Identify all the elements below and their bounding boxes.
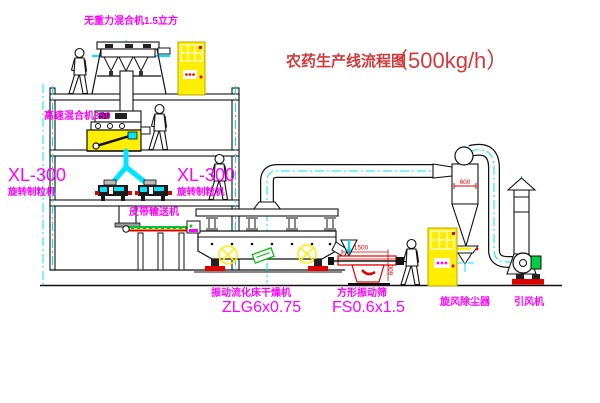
- label-dryer-name: 振动流化床干燥机: [211, 286, 291, 299]
- worker-figure-1: [69, 49, 88, 94]
- screen-length-dim: 1500: [354, 245, 369, 252]
- dryer-exhaust-duct: [253, 164, 452, 212]
- label-gravity-mixer: 无重力混合机1.5立方: [83, 14, 178, 27]
- label-dryer-model: ZLG6x0.75: [222, 299, 301, 316]
- granulator-right: [135, 180, 172, 201]
- worker-figure-2: [149, 105, 168, 150]
- label-screen-model: FS0.6x1.5: [332, 299, 405, 316]
- label-belt-conveyor: 皮带输送机: [128, 205, 179, 218]
- granulator-left: [95, 180, 132, 201]
- label-granulator-left-name: 旋转制粒机: [7, 186, 56, 198]
- control-cabinet-top: [178, 42, 205, 95]
- process-flow-diagram: 600 1500 600: [0, 0, 600, 403]
- induced-draft-fan: [512, 253, 544, 285]
- label-cyclone: 旋风除尘器: [439, 295, 491, 308]
- cad-drawing-viewport: 600 1500 600: [0, 0, 600, 403]
- label-screen-name: 方形振动筛: [337, 286, 387, 299]
- label-high-speed-mixer: 高速混合机350: [44, 109, 111, 122]
- label-granulator-right-model: XL-300: [177, 165, 235, 185]
- label-granulator-right-name: 旋转制粒机: [176, 186, 225, 198]
- label-fan: 引风机: [514, 295, 544, 308]
- label-granulator-left-model: XL-300: [8, 165, 66, 185]
- screen-height-dim: 600: [388, 264, 395, 275]
- cyclone-dim-label: 600: [460, 179, 471, 186]
- drawing-title-capacity: （500kg/h）: [386, 48, 508, 73]
- control-cabinet-right: [428, 228, 457, 286]
